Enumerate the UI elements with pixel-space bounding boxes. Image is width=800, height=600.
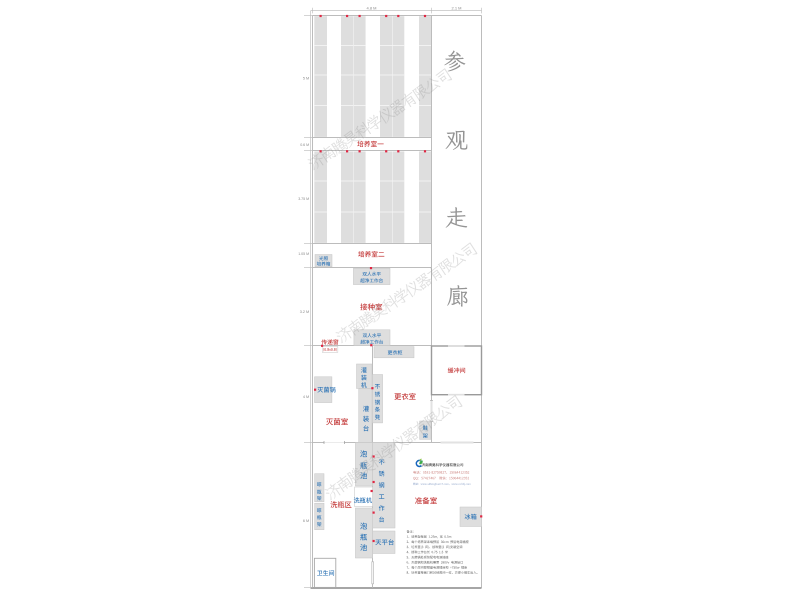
svg-text:1.05 M: 1.05 M [298,252,309,256]
svg-text:3.75 M: 3.75 M [298,197,309,201]
svg-text:4 M: 4 M [303,395,309,399]
svg-text:0.6 M: 0.6 M [300,143,309,147]
svg-text:2.1 M: 2.1 M [451,6,461,11]
svg-text:5 M: 5 M [303,77,309,81]
svg-text:6 M: 6 M [303,519,309,523]
svg-text:3.2 M: 3.2 M [300,310,310,314]
svg-text:4.8 M: 4.8 M [366,6,376,11]
